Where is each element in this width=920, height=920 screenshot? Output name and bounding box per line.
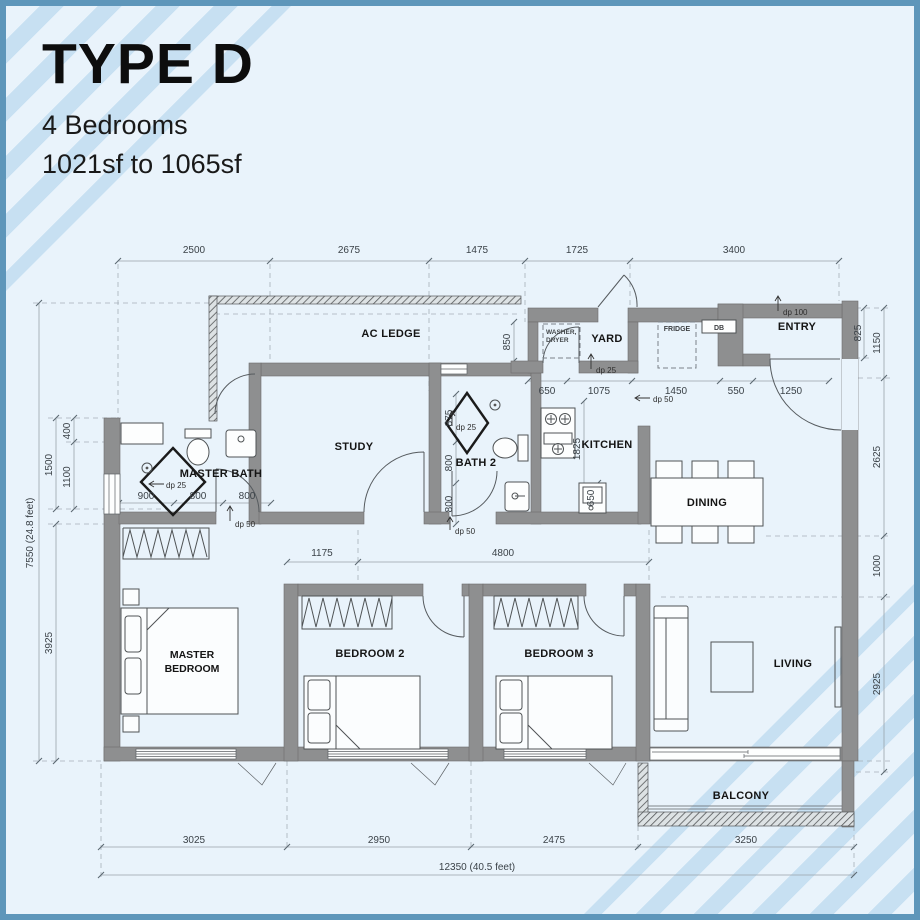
dim-bath2-875: 875 [444,409,455,426]
dim-bath2-800b: 800 [444,495,455,512]
pillow [308,713,330,743]
chair [692,461,718,478]
bath2-toilet [493,438,517,458]
dim-kitchen-1825: 1825 [572,437,583,460]
label-living: LIVING [774,658,812,670]
label-master-bedroom-line2: BEDROOM [165,663,220,675]
dim-right-825: 825 [853,324,864,341]
drop-dp50-bath2: dp 50 [455,527,476,536]
dim-right-1000: 1000 [872,554,883,577]
balcony-sliding-door [650,748,840,760]
dim-right-1150: 1150 [872,332,883,354]
dim-bottom-2: 2950 [368,835,391,846]
dim-left-3925: 3925 [44,631,55,654]
label-kitchen: KITCHEN [582,439,633,451]
dim-top-4: 1725 [566,245,589,256]
label-master-bedroom-line1: MASTER [170,649,215,661]
dim-k5: 1250 [780,386,803,397]
master-toilet [187,439,209,465]
sofa [654,606,688,731]
dim-hall-4800: 4800 [492,548,515,559]
pillow [308,680,330,710]
toilet-tank [518,435,528,461]
toilet-tank [185,429,211,438]
pillow [125,658,141,694]
bedroom3-closet [494,596,578,629]
drop-dp25-yard: dp 25 [596,366,617,375]
label-study: STUDY [335,441,374,453]
dim-top-5: 3400 [723,245,746,256]
subtitle-area: 1021sf to 1065sf [42,145,254,184]
room-labels: AC LEDGE STUDY MASTER BATH BATH 2 YARD K… [165,321,817,802]
chair [692,526,718,543]
dim-right-2925: 2925 [872,672,883,695]
label-fridge: FRIDGE [664,326,691,333]
dim-k1: 650 [539,386,556,397]
dim-yard-850: 850 [502,333,513,350]
title-block: TYPE D 4 Bedrooms 1021sf to 1065sf [42,36,254,184]
coffee-table [711,642,753,692]
page-title: TYPE D [42,36,254,93]
dim-bath-800b: 800 [239,491,256,502]
label-ac-ledge: AC LEDGE [361,328,420,340]
study-door [364,452,424,512]
yard-top-door [598,275,637,307]
label-entry: ENTRY [778,321,817,333]
casement-windows [238,763,626,785]
label-bedroom3: BEDROOM 3 [524,648,593,660]
dim-left-1500: 1500 [44,453,55,476]
pillow [500,680,522,710]
chair [656,461,682,478]
nightstand [123,716,139,732]
dim-bottom-4: 3250 [735,835,758,846]
dim-top-3: 1475 [466,245,489,256]
bedroom2-door [423,596,464,637]
label-dining: DINING [687,497,727,509]
dim-left-1100: 1100 [62,466,73,488]
nightstand [123,589,139,605]
label-bedroom2: BEDROOM 2 [335,648,404,660]
bath-niche [121,423,163,444]
chair [728,526,754,543]
dim-hall-1175: 1175 [311,548,333,559]
dim-bath-800a: 800 [190,491,207,502]
drop-dp100: dp 100 [783,308,808,317]
label-balcony: BALCONY [713,790,770,802]
label-bath2: BATH 2 [456,457,497,469]
dim-bath2-800a: 800 [444,454,455,471]
label-yard: YARD [591,333,622,345]
floorplan-page: TYPE D 4 Bedrooms 1021sf to 1065sf [0,0,920,920]
label-dryer: DRYER [546,337,569,344]
tv-console [835,627,841,707]
dimension-lines [36,258,887,878]
bath2-door [452,471,497,516]
dim-bottom-1: 3025 [183,835,206,846]
dim-k2: 1075 [588,386,611,397]
drop-dp25-masterbath: dp 25 [166,481,187,490]
master-sink [226,430,256,457]
label-washer: WASHER, [546,329,577,336]
drop-dp50-masterbath: dp 50 [235,520,256,529]
label-master-bath: MASTER BATH [180,468,263,480]
dim-right-2625: 2625 [872,445,883,468]
dim-bottom-3: 2475 [543,835,566,846]
dim-top-2: 2675 [338,245,361,256]
dim-left-total: 7550 (24.8 feet) [25,498,36,569]
dim-kitchen-650: 650 [586,489,597,506]
dim-bath-900: 900 [138,491,155,502]
chair [656,526,682,543]
drop-dp25-bath2: dp 25 [456,423,477,432]
pillow [500,713,522,743]
dim-left-400: 400 [62,422,73,439]
chair [728,461,754,478]
bedroom3-door [584,596,624,636]
pillow [125,616,141,652]
drop-dp50-kitchen: dp 50 [653,395,674,404]
subtitle-bedrooms: 4 Bedrooms [42,106,254,145]
dim-bottom-total: 12350 (40.5 feet) [439,862,515,873]
dim-k4: 550 [728,386,745,397]
entry-door-opening [842,359,858,430]
dim-top-1: 2500 [183,245,206,256]
label-db: DB [714,325,724,332]
